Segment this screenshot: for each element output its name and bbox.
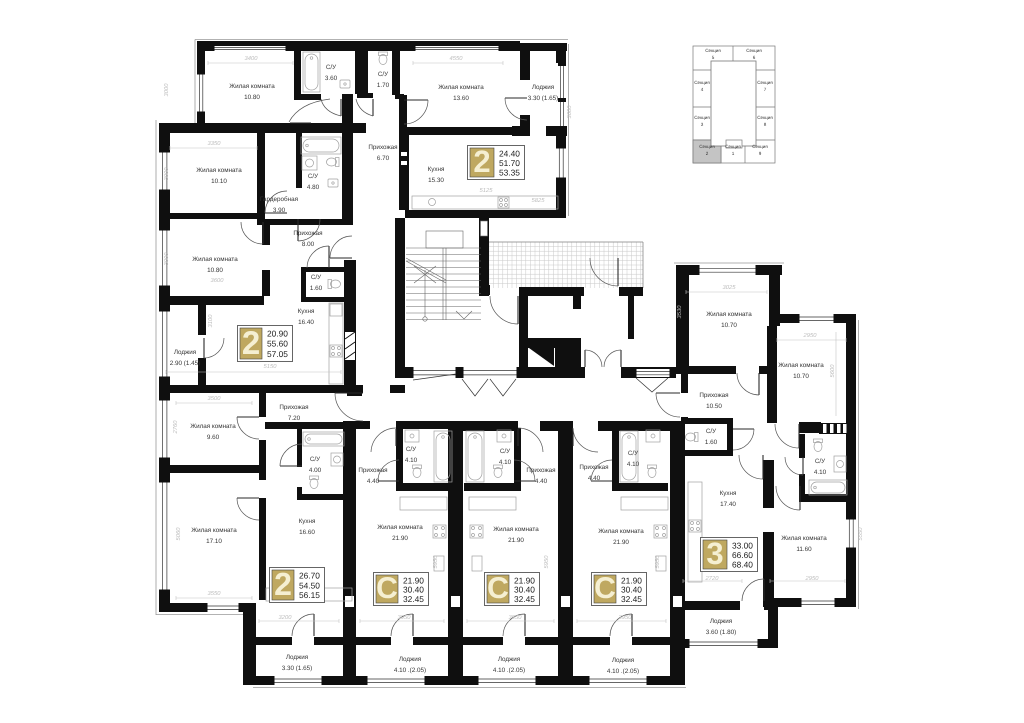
svg-text:С/У: С/У <box>308 173 319 180</box>
svg-text:4.80: 4.80 <box>307 184 320 191</box>
svg-text:2: 2 <box>242 324 260 361</box>
svg-text:Жилая комната: Жилая комната <box>598 528 644 535</box>
svg-text:С/У: С/У <box>326 64 337 71</box>
svg-text:С/У: С/У <box>310 456 321 463</box>
svg-text:5060: 5060 <box>175 527 182 541</box>
svg-text:1.70: 1.70 <box>377 82 390 89</box>
svg-text:Секция: Секция <box>752 144 768 149</box>
svg-text:5150: 5150 <box>264 363 278 370</box>
svg-text:5950: 5950 <box>654 555 661 569</box>
svg-text:4550: 4550 <box>450 55 464 62</box>
svg-text:33.00: 33.00 <box>732 541 753 551</box>
svg-text:24.40: 24.40 <box>499 149 520 159</box>
svg-text:10.70: 10.70 <box>721 322 737 329</box>
svg-text:Жилая комната: Жилая комната <box>191 527 237 534</box>
svg-text:5125: 5125 <box>480 187 494 194</box>
svg-text:4.10: 4.10 <box>814 469 827 476</box>
svg-text:Секция: Секция <box>746 48 762 53</box>
svg-text:57.05: 57.05 <box>267 349 288 359</box>
svg-text:53.35: 53.35 <box>499 167 520 177</box>
svg-text:5950: 5950 <box>432 555 439 569</box>
svg-text:С: С <box>594 572 616 605</box>
svg-text:Жилая комната: Жилая комната <box>493 526 539 533</box>
svg-text:Секция: Секция <box>757 115 773 120</box>
svg-text:1.60: 1.60 <box>310 285 323 292</box>
svg-text:3950: 3950 <box>619 614 633 621</box>
svg-text:Кухня: Кухня <box>720 490 737 497</box>
svg-text:2950: 2950 <box>805 575 820 582</box>
svg-text:1.60: 1.60 <box>705 439 718 446</box>
svg-text:15.30: 15.30 <box>428 177 444 184</box>
svg-text:3.60: 3.60 <box>325 75 338 82</box>
svg-text:3600: 3600 <box>566 105 573 119</box>
svg-text:3600: 3600 <box>211 277 225 284</box>
svg-text:4.00: 4.00 <box>309 467 322 474</box>
svg-text:Жилая комната: Жилая комната <box>229 83 275 90</box>
svg-text:4.10: 4.10 <box>405 457 418 464</box>
svg-text:21.90: 21.90 <box>392 535 408 542</box>
svg-text:Прихожая: Прихожая <box>368 144 397 151</box>
svg-text:2720: 2720 <box>705 575 720 582</box>
svg-text:Секция: Секция <box>694 115 710 120</box>
svg-text:3000: 3000 <box>163 252 170 266</box>
svg-text:9: 9 <box>759 151 762 156</box>
svg-text:Жилая комната: Жилая комната <box>706 311 752 318</box>
svg-text:4.10: 4.10 <box>627 461 640 468</box>
svg-text:9.60: 9.60 <box>207 434 220 441</box>
svg-text:55.60: 55.60 <box>267 339 288 349</box>
svg-text:Кухня: Кухня <box>299 518 316 525</box>
svg-text:5825: 5825 <box>532 197 546 204</box>
svg-text:3350: 3350 <box>208 140 222 147</box>
svg-text:4.10 .(2.05): 4.10 .(2.05) <box>394 667 426 674</box>
svg-text:3950: 3950 <box>509 614 523 621</box>
svg-text:4.10 .(2.05): 4.10 .(2.05) <box>493 667 525 674</box>
svg-text:Жилая комната: Жилая комната <box>781 535 827 542</box>
svg-text:5950: 5950 <box>543 555 550 569</box>
svg-text:3000: 3000 <box>163 167 170 181</box>
svg-text:Жилая комната: Жилая комната <box>192 256 238 263</box>
svg-text:Лоджия: Лоджия <box>532 84 554 91</box>
svg-text:1: 1 <box>732 151 735 156</box>
svg-text:26.70: 26.70 <box>299 571 320 581</box>
svg-text:Жилая комната: Жилая комната <box>196 167 242 174</box>
svg-text:Кухня: Кухня <box>298 308 315 315</box>
svg-text:Лоджия: Лоджия <box>498 656 520 663</box>
svg-text:17.10: 17.10 <box>206 538 222 545</box>
svg-text:3500: 3500 <box>208 395 222 402</box>
svg-text:С/У: С/У <box>628 450 639 457</box>
svg-text:Лоджия: Лоджия <box>399 656 421 663</box>
svg-text:16.60: 16.60 <box>299 529 315 536</box>
svg-text:8.00: 8.00 <box>302 241 315 248</box>
svg-text:Жилая комната: Жилая комната <box>377 524 423 531</box>
svg-text:3530: 3530 <box>676 305 683 319</box>
svg-text:3.30 (1.65): 3.30 (1.65) <box>528 95 558 102</box>
svg-text:Лоджия: Лоджия <box>710 618 732 625</box>
svg-text:5: 5 <box>712 55 715 60</box>
svg-text:Жилая комната: Жилая комната <box>438 84 484 91</box>
svg-text:2: 2 <box>706 151 709 156</box>
svg-text:2: 2 <box>473 144 490 179</box>
svg-text:56.15: 56.15 <box>299 590 320 600</box>
svg-text:Секция: Секция <box>694 80 710 85</box>
svg-text:16.40: 16.40 <box>298 319 314 326</box>
svg-text:3: 3 <box>701 122 704 127</box>
svg-text:8: 8 <box>764 122 767 127</box>
svg-text:3100: 3100 <box>207 314 214 328</box>
svg-text:10.80: 10.80 <box>244 94 260 101</box>
svg-text:Прихожая: Прихожая <box>279 404 308 411</box>
svg-text:Прихожая: Прихожая <box>699 392 728 399</box>
svg-text:3.30 (1.65): 3.30 (1.65) <box>282 665 312 672</box>
svg-text:3550: 3550 <box>208 590 222 597</box>
svg-text:13.60: 13.60 <box>453 95 469 102</box>
svg-text:Секция: Секция <box>699 144 715 149</box>
svg-text:11.60: 11.60 <box>796 546 812 553</box>
svg-text:Прихожая: Прихожая <box>579 464 608 471</box>
svg-text:3.60 (1.80): 3.60 (1.80) <box>706 629 736 636</box>
svg-text:2: 2 <box>274 566 292 602</box>
svg-text:С: С <box>487 572 509 605</box>
svg-text:Секция: Секция <box>725 144 741 149</box>
svg-text:2.90 (1.45): 2.90 (1.45) <box>170 360 200 367</box>
svg-text:2950: 2950 <box>803 332 818 339</box>
svg-text:С/У: С/У <box>378 71 389 78</box>
svg-text:Лоджия: Лоджия <box>174 349 196 356</box>
svg-text:20.90: 20.90 <box>267 329 288 339</box>
svg-text:С: С <box>376 572 398 605</box>
svg-text:С/У: С/У <box>311 274 322 281</box>
svg-text:3: 3 <box>706 536 723 571</box>
svg-text:4.40: 4.40 <box>588 475 601 482</box>
svg-text:Прихожая: Прихожая <box>293 230 322 237</box>
svg-text:3200: 3200 <box>279 614 293 621</box>
svg-text:Прихожая: Прихожая <box>526 467 555 474</box>
svg-text:4.10 .(2.05): 4.10 .(2.05) <box>607 668 639 675</box>
svg-text:С/У: С/У <box>706 428 717 435</box>
svg-text:2760: 2760 <box>172 420 179 435</box>
svg-text:4.10: 4.10 <box>499 459 512 466</box>
svg-text:3400: 3400 <box>245 55 259 62</box>
svg-text:Секция: Секция <box>705 48 721 53</box>
svg-text:С/У: С/У <box>406 446 417 453</box>
svg-text:32.45: 32.45 <box>403 594 424 604</box>
svg-text:10.10: 10.10 <box>211 178 227 185</box>
svg-text:6: 6 <box>753 55 756 60</box>
svg-text:3.90: 3.90 <box>273 207 286 214</box>
svg-text:7.20: 7.20 <box>288 415 301 422</box>
svg-text:4: 4 <box>701 87 704 92</box>
svg-text:21.90: 21.90 <box>613 539 629 546</box>
svg-text:С/У: С/У <box>815 458 826 465</box>
svg-text:21.90: 21.90 <box>508 537 524 544</box>
svg-text:Гардеробная: Гардеробная <box>260 196 298 203</box>
svg-text:4.40: 4.40 <box>367 478 380 485</box>
svg-text:Жилая комната: Жилая комната <box>190 423 236 430</box>
svg-text:С/У: С/У <box>500 448 511 455</box>
svg-text:Секция: Секция <box>757 80 773 85</box>
svg-text:68.40: 68.40 <box>732 559 753 569</box>
svg-text:3000: 3000 <box>163 83 170 97</box>
svg-text:17.40: 17.40 <box>720 501 736 508</box>
svg-text:Лоджия: Лоджия <box>286 654 308 661</box>
svg-text:54.50: 54.50 <box>299 580 320 590</box>
svg-text:5550: 5550 <box>857 527 864 541</box>
svg-text:32.45: 32.45 <box>621 594 642 604</box>
svg-text:3950: 3950 <box>398 614 412 621</box>
svg-text:10.50: 10.50 <box>706 403 722 410</box>
svg-text:10.70: 10.70 <box>793 373 809 380</box>
svg-text:32.45: 32.45 <box>514 594 535 604</box>
svg-text:7: 7 <box>764 87 767 92</box>
svg-text:Прихожая: Прихожая <box>358 467 387 474</box>
svg-text:Жилая комната: Жилая комната <box>778 362 824 369</box>
svg-text:4.40: 4.40 <box>535 478 548 485</box>
svg-text:6.70: 6.70 <box>377 155 390 162</box>
svg-text:3025: 3025 <box>723 284 737 291</box>
svg-text:Кухня: Кухня <box>428 166 445 173</box>
svg-text:5600: 5600 <box>829 364 836 378</box>
svg-text:10.80: 10.80 <box>207 267 223 274</box>
svg-text:Лоджия: Лоджия <box>612 657 634 664</box>
